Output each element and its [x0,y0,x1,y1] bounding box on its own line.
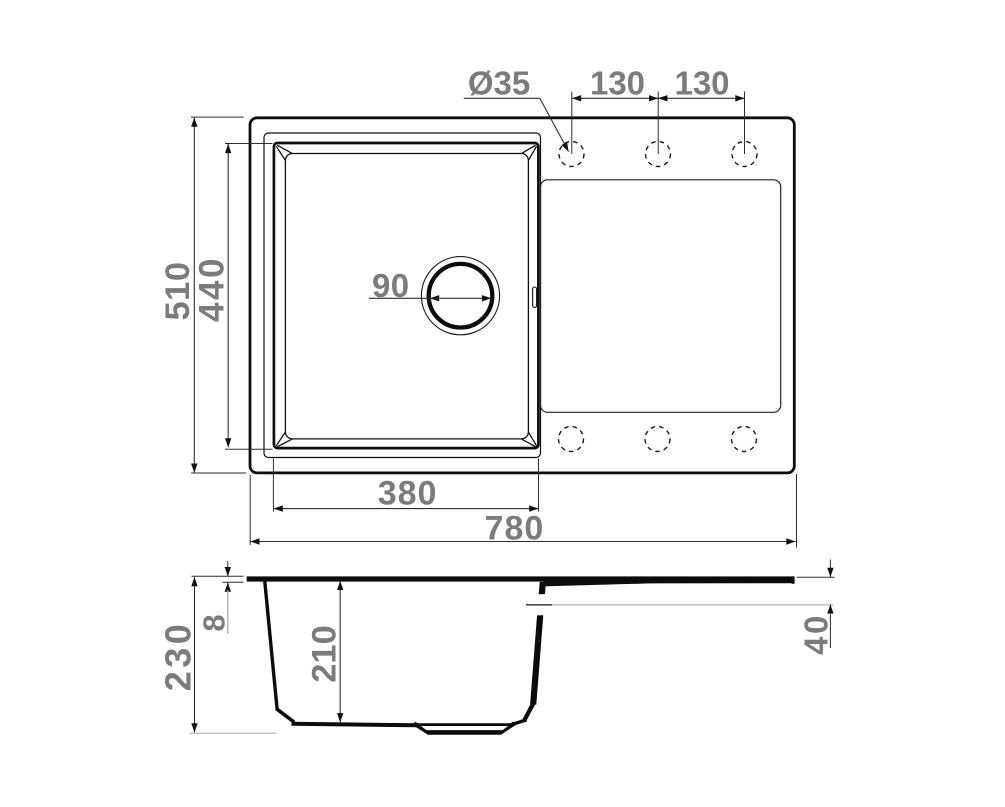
svg-text:440: 440 [193,256,232,322]
svg-text:40: 40 [797,613,834,655]
svg-text:230: 230 [158,621,199,692]
svg-text:380: 380 [378,474,438,512]
svg-text:510: 510 [159,261,197,320]
svg-text:210: 210 [305,625,343,683]
svg-text:90: 90 [372,267,410,304]
svg-text:Ø35: Ø35 [468,65,530,102]
svg-text:130: 130 [674,65,729,102]
svg-text:8: 8 [196,614,231,632]
svg-text:780: 780 [485,509,545,547]
svg-text:130: 130 [590,65,645,102]
